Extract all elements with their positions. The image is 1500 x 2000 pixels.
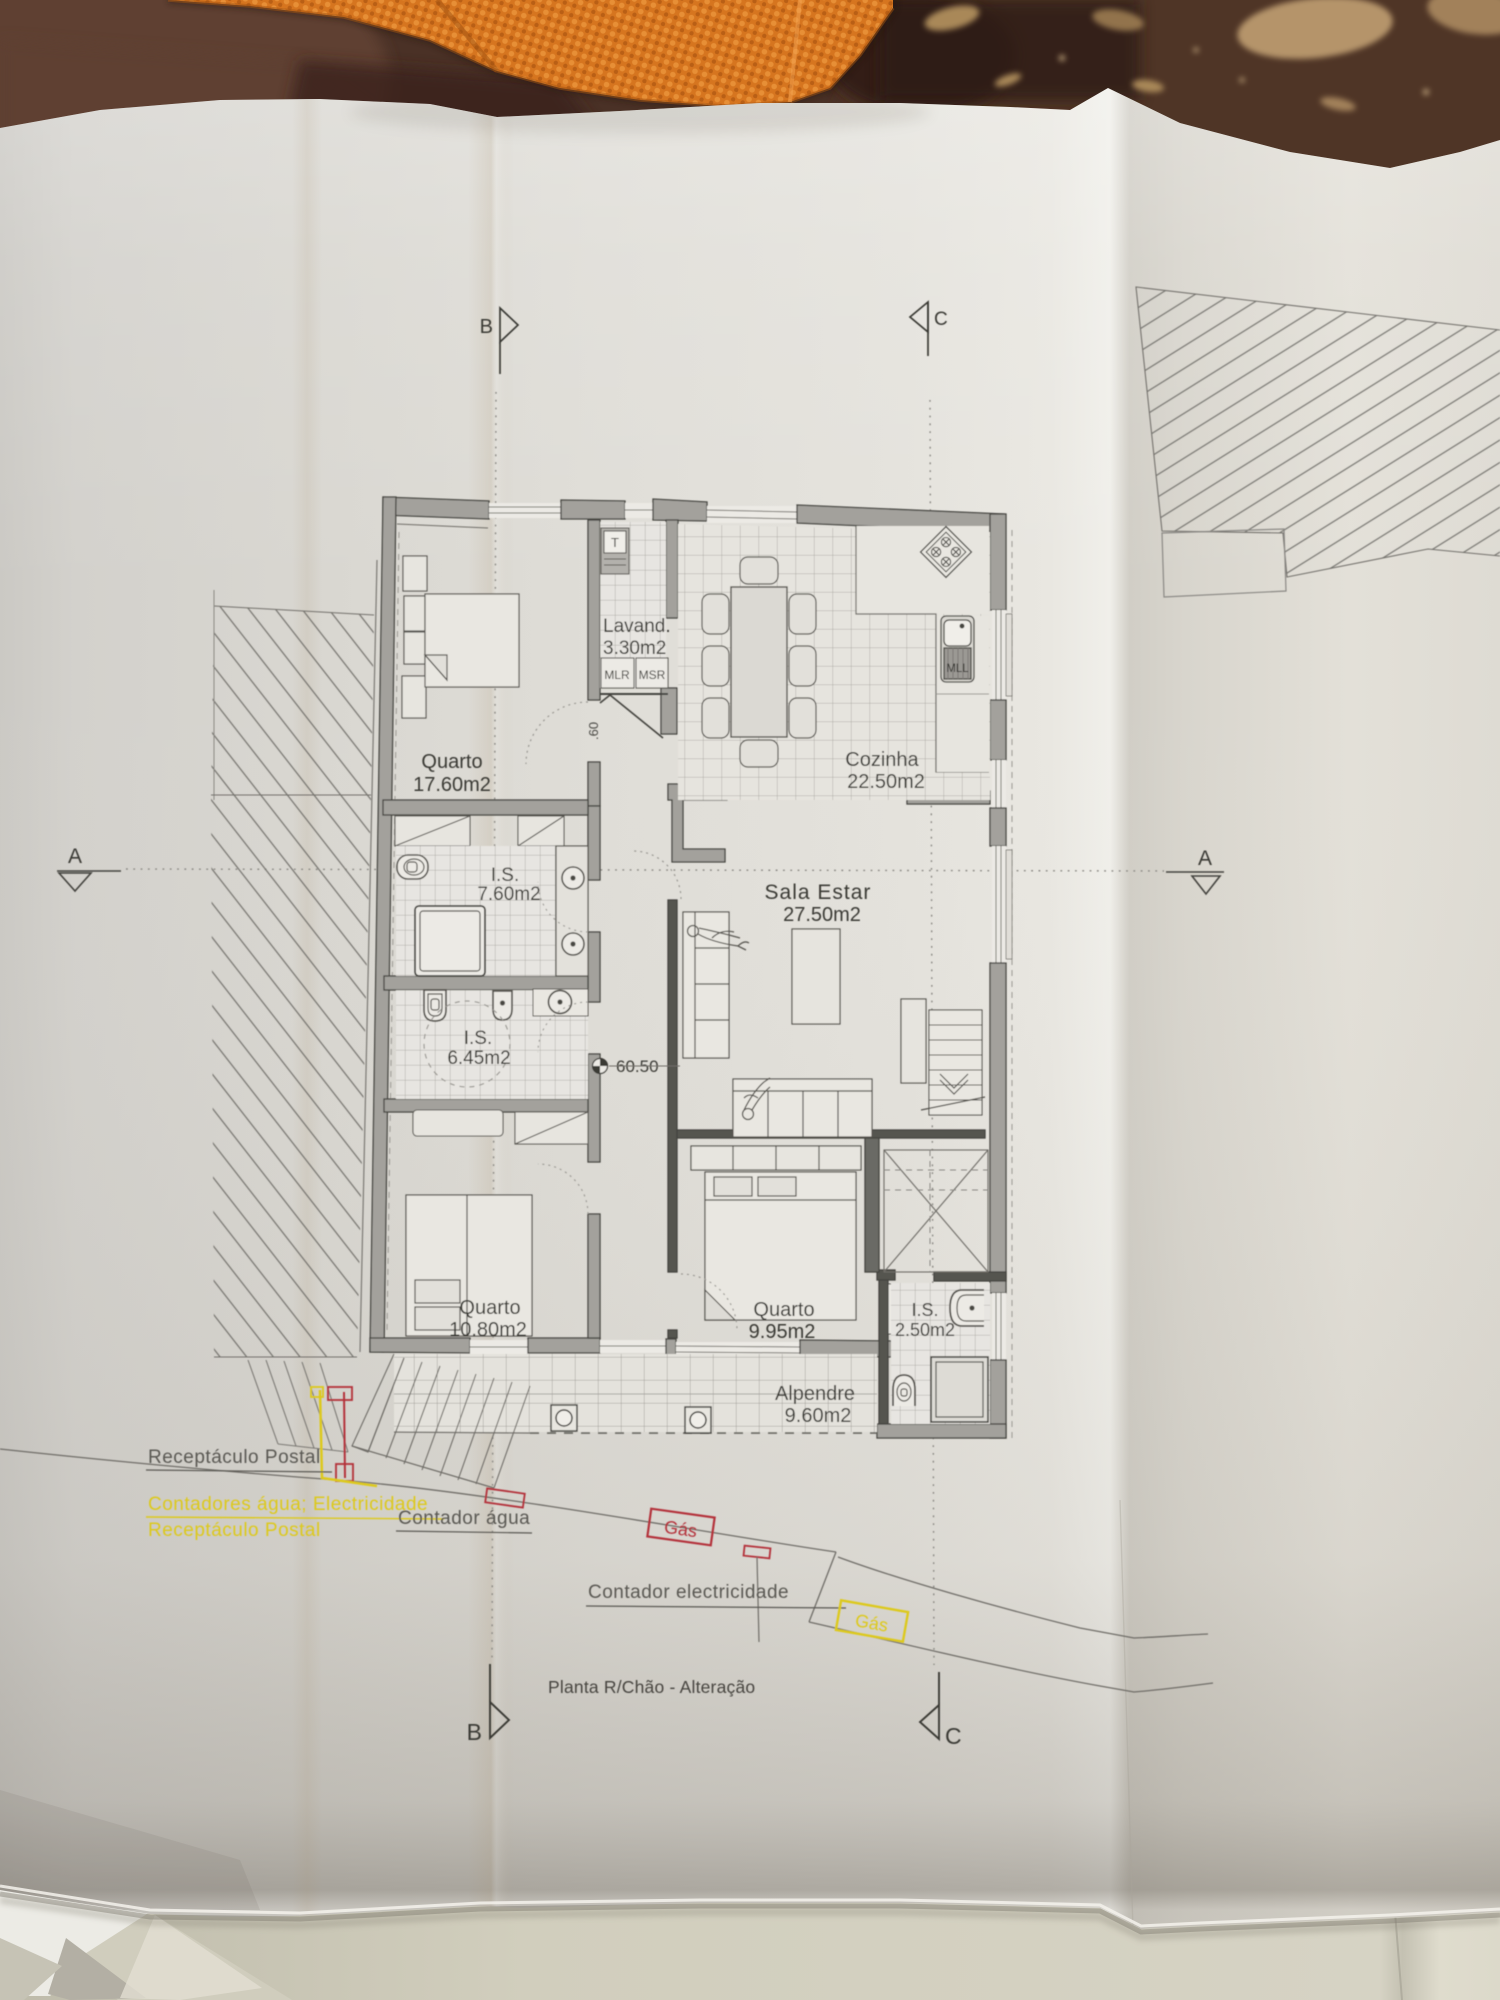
svg-text:MLR: MLR (604, 668, 630, 682)
svg-text:Quarto: Quarto (421, 751, 482, 773)
svg-text:MSR: MSR (639, 668, 666, 682)
svg-text:Alpendre: Alpendre (775, 1383, 855, 1405)
svg-text:Receptáculo Postal: Receptáculo Postal (148, 1520, 321, 1541)
svg-text:Quarto: Quarto (459, 1297, 520, 1319)
svg-text:6.45m2: 6.45m2 (447, 1048, 510, 1069)
svg-text:Receptáculo Postal: Receptáculo Postal (148, 1447, 321, 1468)
svg-text:Lavand.: Lavand. (603, 616, 671, 637)
svg-text:C: C (945, 1723, 962, 1749)
svg-text:Contador electricidade: Contador electricidade (588, 1582, 789, 1603)
svg-text:I.S.: I.S. (464, 1028, 493, 1049)
svg-text:7.60m2: 7.60m2 (477, 884, 540, 905)
svg-text:Contadores água; Electricidade: Contadores água; Electricidade (148, 1494, 428, 1515)
svg-text:22.50m2: 22.50m2 (847, 771, 925, 793)
svg-text:2.50m2: 2.50m2 (895, 1320, 955, 1340)
svg-text:9.60m2: 9.60m2 (785, 1405, 852, 1427)
svg-text:MLL: MLL (946, 663, 969, 675)
svg-text:Quarto: Quarto (753, 1299, 814, 1321)
svg-text:A: A (1198, 847, 1212, 870)
svg-text:10.80m2: 10.80m2 (449, 1319, 527, 1341)
svg-text:Sala Estar: Sala Estar (765, 881, 872, 904)
svg-text:.60: .60 (586, 722, 601, 740)
svg-text:Planta R/Chão - Alteração: Planta R/Chão - Alteração (548, 1677, 755, 1697)
svg-text:17.60m2: 17.60m2 (413, 774, 491, 796)
svg-text:27.50m2: 27.50m2 (783, 904, 861, 926)
svg-text:3.30m2: 3.30m2 (603, 638, 666, 659)
svg-text:A: A (68, 845, 82, 868)
svg-text:B: B (467, 1719, 482, 1745)
svg-text:T: T (611, 535, 619, 550)
svg-text:9.95m2: 9.95m2 (749, 1321, 816, 1343)
svg-text:I.S.: I.S. (911, 1300, 938, 1320)
svg-text:Contador água: Contador água (398, 1508, 530, 1529)
svg-text:C: C (934, 309, 948, 330)
svg-text:B: B (480, 316, 493, 338)
svg-text:I.S.: I.S. (491, 865, 520, 886)
svg-text:Cozinha: Cozinha (845, 749, 919, 771)
